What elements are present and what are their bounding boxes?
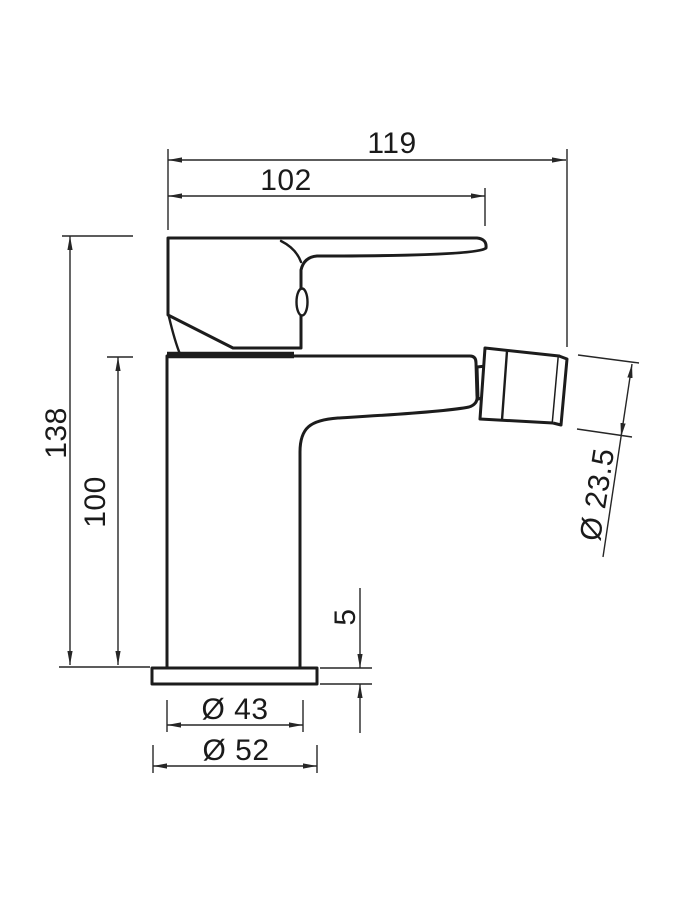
dimension-overall-height: 138 [40, 236, 150, 667]
dim-line [621, 364, 632, 437]
base-plate [152, 668, 317, 684]
handle-housing [168, 238, 486, 348]
dim-label-d43: Ø 43 [201, 693, 268, 726]
housing-front-arc [169, 317, 180, 354]
dimension-aerator-diameter: Ø 23.5 [574, 355, 639, 557]
bidet-faucet-dimension-diagram: 119 102 138 100 5 [0, 0, 678, 901]
dim-label-138: 138 [40, 407, 73, 459]
ext-line [578, 355, 639, 363]
dim-label-d23-5: Ø 23.5 [574, 446, 621, 543]
dim-label-5: 5 [329, 608, 362, 625]
dim-label-119: 119 [367, 127, 416, 160]
aerator-head [480, 348, 559, 423]
dimension-body-height: 100 [79, 357, 133, 665]
dimension-body-diameter: Ø 43 [167, 693, 303, 732]
handle-button [297, 289, 308, 316]
technical-drawing-page: 119 102 138 100 5 [0, 0, 678, 901]
dim-label-100: 100 [79, 476, 112, 528]
dimension-spout-projection: 102 [168, 164, 485, 226]
dim-label-d52: Ø 52 [202, 734, 269, 767]
dim-label-102: 102 [260, 164, 312, 197]
ext-line [577, 429, 632, 437]
dimension-base-diameter: Ø 52 [153, 734, 317, 773]
dimension-base-thickness: 5 [320, 588, 372, 733]
body-spout-path [167, 356, 477, 668]
